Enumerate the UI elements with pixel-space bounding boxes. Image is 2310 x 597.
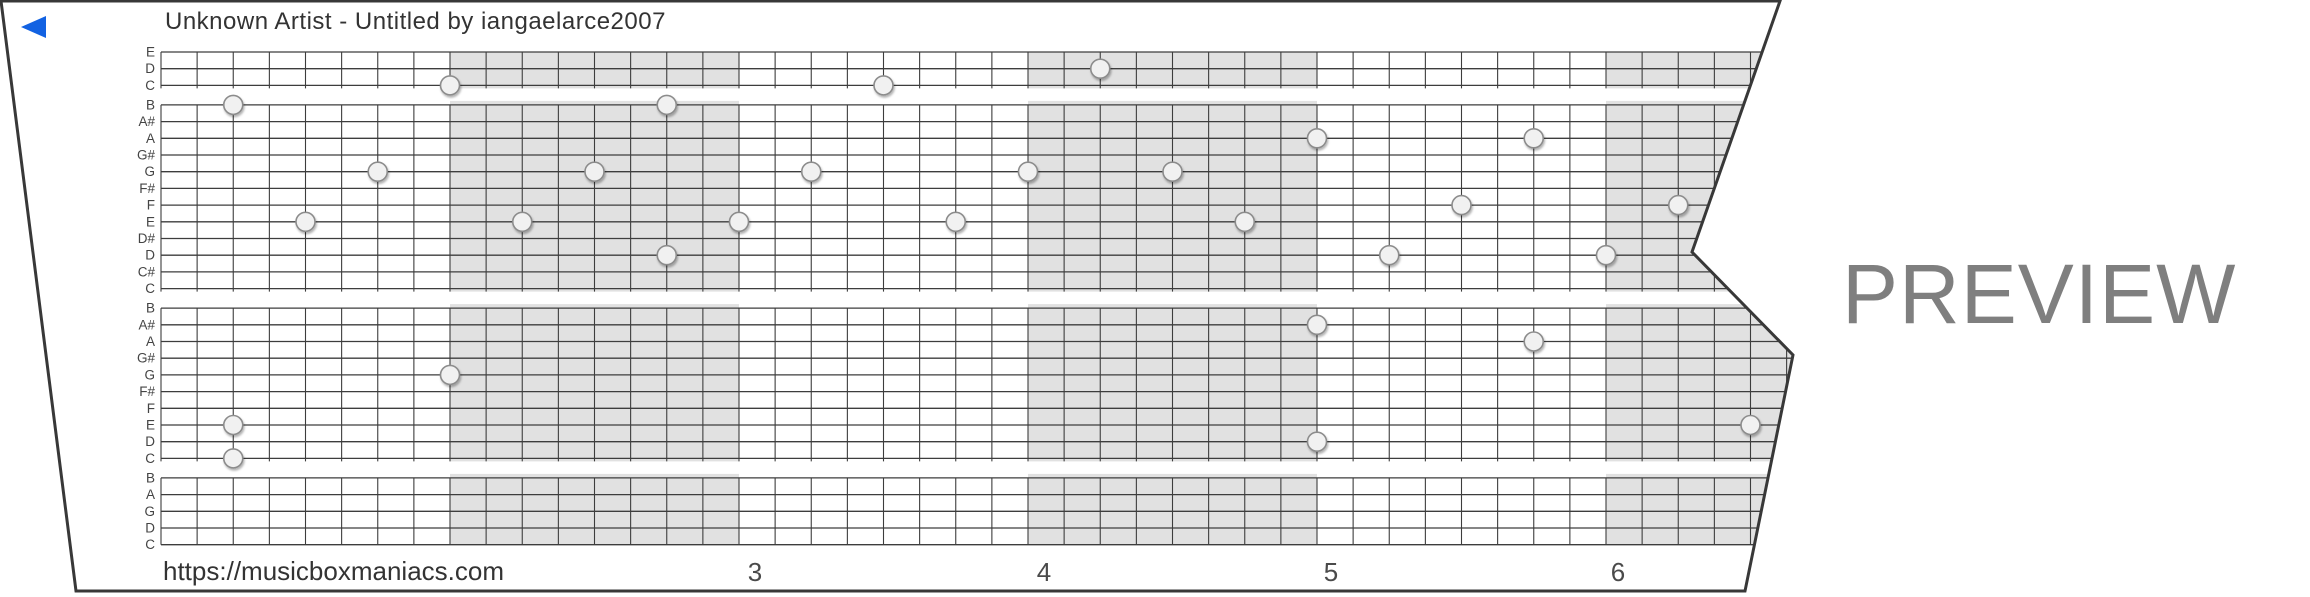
note-circle [1235,212,1254,231]
note-circle [946,212,965,231]
note-circle [224,449,243,468]
row-label: D [145,61,155,76]
octave-band [161,461,1810,474]
row-label: B [146,301,155,316]
row-label: B [146,97,155,112]
measure-number: 6 [1611,557,1625,587]
row-label: E [146,214,155,229]
row-label: D [145,248,155,263]
row-label: A [146,131,155,146]
row-label: G# [137,148,156,163]
row-label: C# [138,264,156,279]
row-label: C [145,537,155,552]
note-circle [730,212,749,231]
note-circle [657,246,676,265]
row-label: G [144,367,155,382]
row-label: C [145,451,155,466]
row-label: D [145,521,155,536]
song-title: Unknown Artist - Untitled by iangaelarce… [165,8,666,36]
measure-number: 3 [748,557,762,587]
note-circle [513,212,532,231]
row-label: A# [138,114,155,129]
note-circle [1091,59,1110,78]
note-circle [585,162,604,181]
note-circle [1019,162,1038,181]
measure-number: 4 [1037,557,1051,587]
row-label: G# [137,351,156,366]
note-circle [441,365,460,384]
note-circle [1524,129,1543,148]
row-label: F# [139,384,155,399]
row-label: F [147,198,155,213]
row-label: A [146,487,155,502]
preview-watermark: PREVIEW [1842,252,2236,336]
note-circle [874,76,893,95]
row-label: F# [139,181,155,196]
note-circle [1308,129,1327,148]
octave-band [161,292,1810,305]
row-label: G [144,164,155,179]
note-circle [657,95,676,114]
note-circle [1163,162,1182,181]
note-circle [224,416,243,435]
site-url: https://musicboxmaniacs.com [163,556,504,587]
music-box-preview: EDCBA#AG#GF#FED#DC#CBA#AG#GF#FEDCBAGDC34… [0,0,2310,597]
note-circle [441,76,460,95]
note-circle [1308,315,1327,334]
row-label: A [146,334,155,349]
note-circle [368,162,387,181]
note-circle [296,212,315,231]
note-circle [224,95,243,114]
row-label: D# [138,231,156,246]
measure-number: 5 [1324,557,1338,587]
note-circle [1597,246,1616,265]
note-circle [1380,246,1399,265]
note-circle [1452,196,1471,215]
octave-band [161,88,1810,101]
note-circle [1308,432,1327,451]
note-circle [1669,196,1688,215]
row-label: C [145,78,155,93]
row-label: D [145,434,155,449]
note-circle [1741,416,1760,435]
row-label: F [147,401,155,416]
row-label: B [146,470,155,485]
row-label: G [144,504,155,519]
row-label: C [145,281,155,296]
note-circle [802,162,821,181]
note-circle [1524,332,1543,351]
row-label: E [146,418,155,433]
row-label: E [146,45,155,60]
row-label: A# [138,317,155,332]
